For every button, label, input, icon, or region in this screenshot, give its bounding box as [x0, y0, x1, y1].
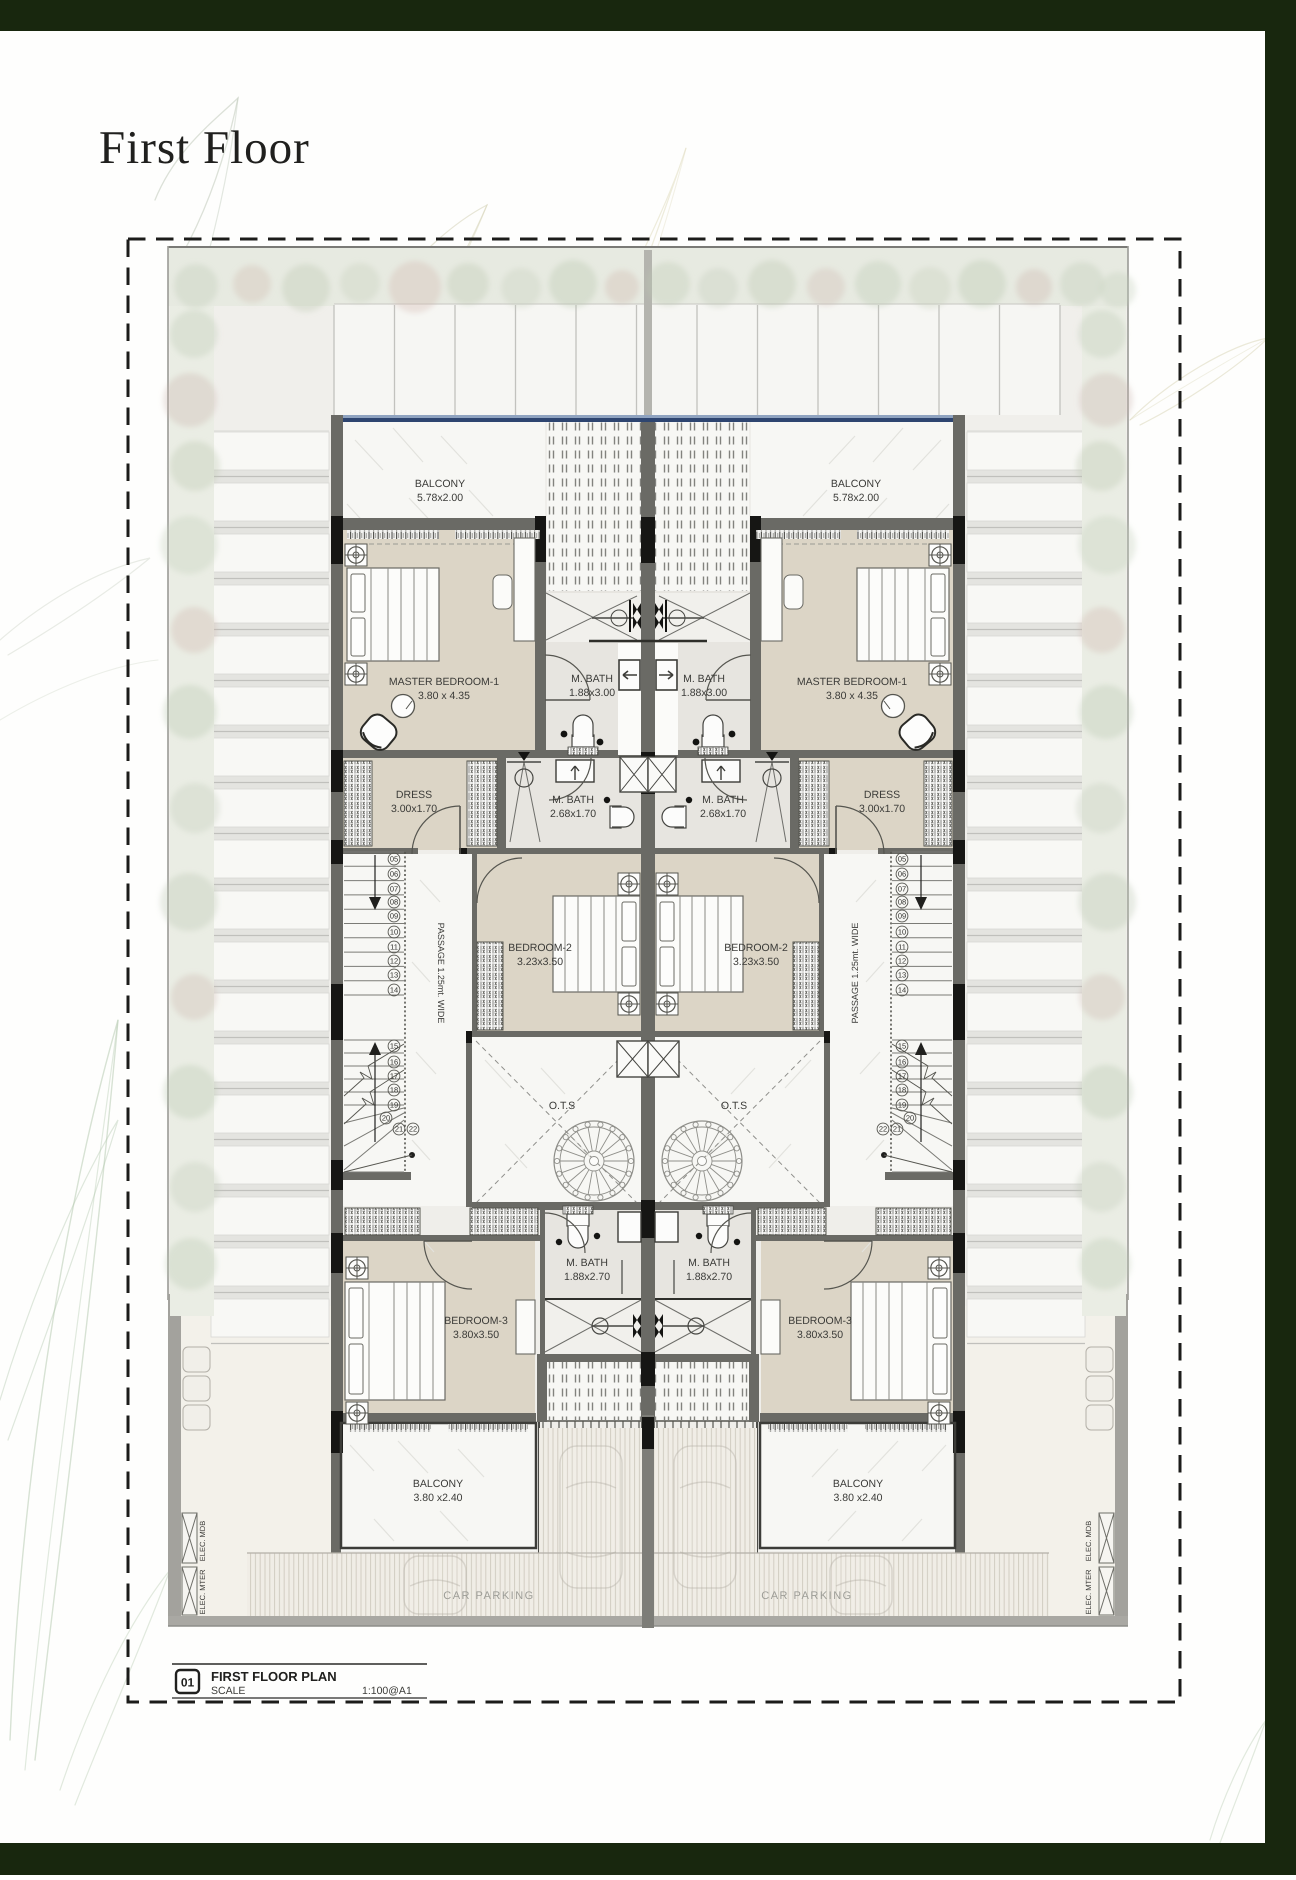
- svg-text:DRESS: DRESS: [396, 789, 432, 801]
- svg-text:3.23x3.50: 3.23x3.50: [733, 956, 779, 968]
- svg-text:17: 17: [898, 1072, 906, 1081]
- svg-text:M. BATH: M. BATH: [566, 1257, 608, 1269]
- svg-text:18: 18: [390, 1086, 398, 1095]
- svg-text:3.00x1.70: 3.00x1.70: [391, 803, 437, 815]
- svg-text:08: 08: [390, 898, 398, 907]
- svg-text:18: 18: [898, 1086, 906, 1095]
- svg-text:08: 08: [898, 898, 906, 907]
- svg-text:BEDROOM-3: BEDROOM-3: [444, 1315, 508, 1327]
- svg-text:O.T.S: O.T.S: [721, 1100, 747, 1112]
- svg-text:MASTER BEDROOM-1: MASTER BEDROOM-1: [797, 676, 907, 688]
- svg-text:3.80 x 4.35: 3.80 x 4.35: [418, 690, 470, 702]
- svg-text:1.88x2.70: 1.88x2.70: [686, 1271, 732, 1283]
- svg-text:M. BATH: M. BATH: [688, 1257, 730, 1269]
- svg-text:CAR PARKING: CAR PARKING: [443, 1590, 534, 1602]
- svg-text:09: 09: [390, 912, 398, 921]
- svg-text:3.80 x2.40: 3.80 x2.40: [413, 1492, 462, 1504]
- svg-text:SCALE: SCALE: [211, 1685, 245, 1697]
- svg-text:17: 17: [390, 1072, 398, 1081]
- svg-text:15: 15: [390, 1042, 398, 1051]
- svg-text:06: 06: [390, 870, 398, 879]
- svg-text:ELEC. MDB: ELEC. MDB: [1084, 1521, 1093, 1561]
- svg-text:3.00x1.70: 3.00x1.70: [859, 803, 905, 815]
- svg-text:16: 16: [390, 1058, 398, 1067]
- svg-text:11: 11: [390, 943, 398, 952]
- svg-text:09: 09: [898, 912, 906, 921]
- svg-text:16: 16: [898, 1058, 906, 1067]
- svg-text:07: 07: [898, 885, 906, 894]
- svg-text:3.80 x 4.35: 3.80 x 4.35: [826, 690, 878, 702]
- svg-text:12: 12: [390, 957, 398, 966]
- svg-text:10: 10: [898, 928, 906, 937]
- svg-text:PASSAGE 1.25mt. WIDE: PASSAGE 1.25mt. WIDE: [850, 923, 860, 1024]
- svg-text:3.80 x2.40: 3.80 x2.40: [833, 1492, 882, 1504]
- svg-text:M. BATH: M. BATH: [683, 673, 725, 685]
- svg-text:CAR PARKING: CAR PARKING: [761, 1590, 852, 1602]
- svg-text:M. BATH: M. BATH: [552, 794, 594, 806]
- svg-text:05: 05: [390, 855, 398, 864]
- svg-text:First Floor: First Floor: [99, 122, 310, 174]
- svg-text:DRESS: DRESS: [864, 789, 900, 801]
- svg-text:O.T.S: O.T.S: [549, 1100, 575, 1112]
- svg-text:01: 01: [181, 1676, 195, 1690]
- svg-text:5.78x2.00: 5.78x2.00: [833, 492, 879, 504]
- svg-text:19: 19: [898, 1101, 906, 1110]
- svg-text:06: 06: [898, 870, 906, 879]
- svg-text:BALCONY: BALCONY: [415, 478, 465, 490]
- svg-text:BALCONY: BALCONY: [831, 478, 881, 490]
- svg-text:3.80x3.50: 3.80x3.50: [453, 1329, 499, 1341]
- svg-text:10: 10: [390, 928, 398, 937]
- svg-text:20: 20: [382, 1114, 390, 1123]
- svg-text:14: 14: [898, 986, 906, 995]
- svg-text:PASSAGE 1.25mt. WIDE: PASSAGE 1.25mt. WIDE: [436, 923, 446, 1024]
- svg-text:MASTER BEDROOM-1: MASTER BEDROOM-1: [389, 676, 499, 688]
- svg-text:1:100@A1: 1:100@A1: [362, 1685, 412, 1697]
- svg-text:BALCONY: BALCONY: [413, 1478, 463, 1490]
- svg-text:05: 05: [898, 855, 906, 864]
- svg-text:BEDROOM-2: BEDROOM-2: [724, 942, 788, 954]
- svg-text:3.80x3.50: 3.80x3.50: [797, 1329, 843, 1341]
- svg-text:BALCONY: BALCONY: [833, 1478, 883, 1490]
- svg-text:ELEC. MTER: ELEC. MTER: [198, 1569, 207, 1615]
- svg-text:1.88x3.00: 1.88x3.00: [681, 687, 727, 699]
- svg-text:FIRST FLOOR PLAN: FIRST FLOOR PLAN: [211, 1669, 337, 1684]
- svg-text:2.68x1.70: 2.68x1.70: [700, 808, 746, 820]
- svg-text:20: 20: [906, 1114, 914, 1123]
- svg-text:1.88x2.70: 1.88x2.70: [564, 1271, 610, 1283]
- svg-text:21: 21: [395, 1125, 403, 1134]
- svg-text:2.68x1.70: 2.68x1.70: [550, 808, 596, 820]
- svg-text:22: 22: [409, 1125, 417, 1134]
- svg-text:M. BATH: M. BATH: [571, 673, 613, 685]
- svg-text:13: 13: [898, 971, 906, 980]
- svg-text:12: 12: [898, 957, 906, 966]
- svg-text:1.88x3.00: 1.88x3.00: [569, 687, 615, 699]
- svg-text:3.23x3.50: 3.23x3.50: [517, 956, 563, 968]
- svg-text:BEDROOM-3: BEDROOM-3: [788, 1315, 852, 1327]
- svg-text:ELEC. MTER: ELEC. MTER: [1084, 1569, 1093, 1615]
- svg-text:14: 14: [390, 986, 398, 995]
- svg-text:19: 19: [390, 1101, 398, 1110]
- svg-text:ELEC. MDB: ELEC. MDB: [198, 1521, 207, 1561]
- svg-text:07: 07: [390, 885, 398, 894]
- svg-text:BEDROOM-2: BEDROOM-2: [508, 942, 572, 954]
- svg-text:15: 15: [898, 1042, 906, 1051]
- svg-text:22: 22: [879, 1125, 887, 1134]
- svg-text:M. BATH: M. BATH: [702, 794, 744, 806]
- svg-text:21: 21: [893, 1125, 901, 1134]
- svg-text:11: 11: [898, 943, 906, 952]
- svg-text:13: 13: [390, 971, 398, 980]
- svg-text:5.78x2.00: 5.78x2.00: [417, 492, 463, 504]
